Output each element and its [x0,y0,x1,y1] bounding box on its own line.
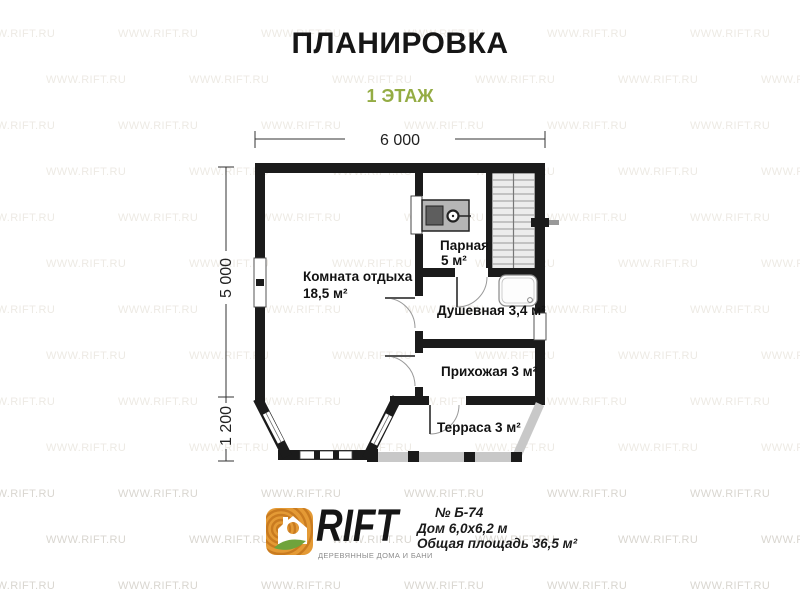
house-size: Дом 6,0х6,2 м [417,521,577,537]
rift-logo-icon [266,508,313,555]
floor-subtitle: 1 ЭТАЖ [0,86,800,107]
staircase [492,173,535,270]
brand-tagline: ДЕРЕВЯННЫЕ ДОМА И БАНИ [318,551,433,560]
label-sauna-area: 5 м² [441,253,467,268]
label-hallway: Прихожая 3 м² [441,364,538,379]
page-title: ПЛАНИРОВКА [0,27,800,61]
dim-height-bay-label: 1 200 [218,406,235,446]
total-area: Общая площадь 36,5 м² [417,536,577,552]
label-shower: Душевная 3,4 м² [437,303,546,318]
doors [385,277,487,434]
vent-mark [531,218,559,227]
shower-tray [499,275,537,306]
project-number: № Б-74 [435,505,577,521]
label-terrace: Терраса 3 м² [437,420,521,435]
dim-width-label: 6 000 [380,132,420,149]
label-lounge-area: 18,5 м² [303,286,348,301]
brand-wordmark: RIFT [316,500,398,552]
project-specs: № Б-74 Дом 6,0х6,2 м Общая площадь 36,5 … [417,505,577,552]
dim-height-main-label: 5 000 [218,258,235,298]
label-lounge-name: Комната отдыха [303,269,413,284]
floor-plan-page: WWW.RIFT.RUWWW.RIFT.RUWWW.RIFT.RUWWW.RIF… [0,0,800,591]
bay-walls [260,402,395,454]
label-sauna-name: Парная [440,238,489,253]
sauna-stove [411,196,471,234]
